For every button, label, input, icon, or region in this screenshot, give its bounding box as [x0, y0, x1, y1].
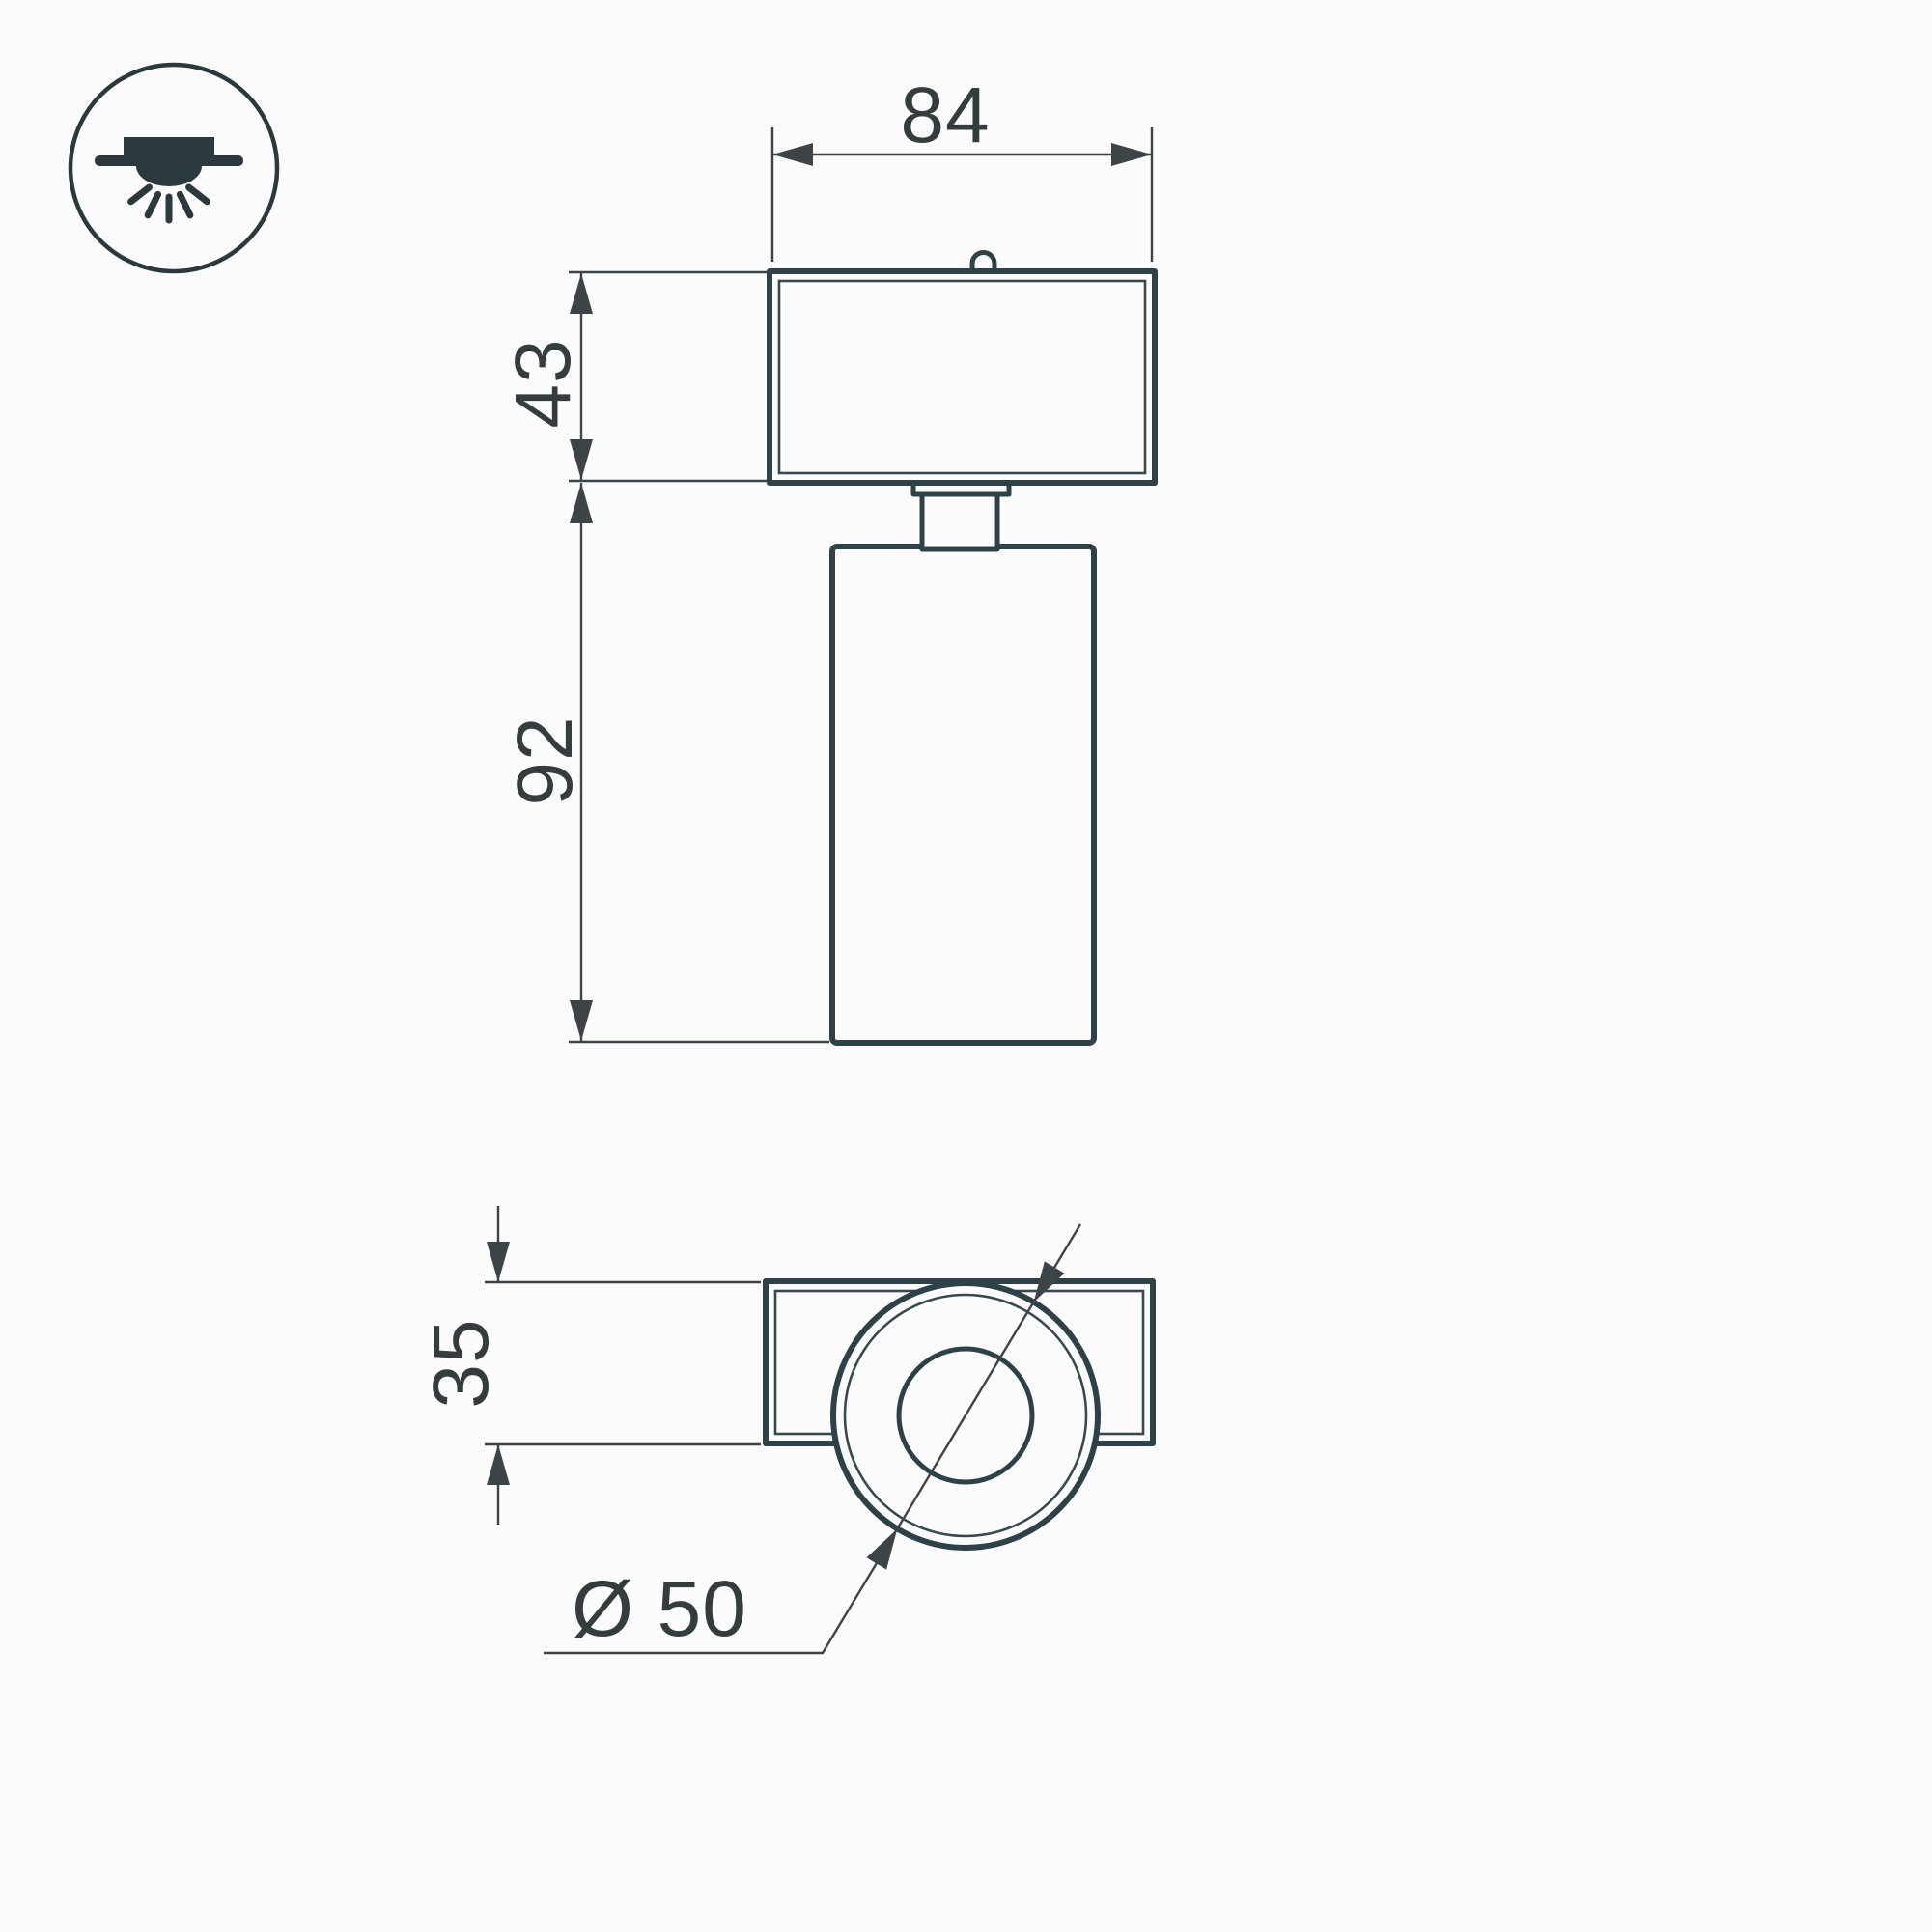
dimension-bracket-depth: 35 [417, 1206, 761, 1525]
head-outline [770, 271, 1155, 483]
arrow-diagonal-up-icon [867, 1528, 898, 1569]
arrow-left-icon [772, 143, 813, 166]
dimension-label-diameter: Ø 50 [572, 1565, 747, 1653]
dimension-label-bracket-depth: 35 [417, 1318, 505, 1408]
dimension-label-width: 84 [900, 71, 990, 159]
dimension-label-head-height: 43 [499, 338, 587, 428]
arrow-down-icon [570, 439, 593, 480]
icon-lamp-dome [136, 166, 202, 186]
icon-fixture-body [124, 137, 214, 158]
arrow-down-icon [570, 1000, 593, 1041]
mount-type-icon [70, 65, 277, 271]
dimension-head-width: 84 [772, 71, 1152, 262]
arrow-up-icon [570, 273, 593, 314]
stem-outline [922, 488, 997, 549]
icon-light-rays [131, 187, 208, 220]
arrow-up-icon [487, 1444, 510, 1485]
dimension-label-body-height: 92 [501, 715, 589, 805]
lamp-body-outline [832, 546, 1094, 1043]
dimension-body-height: 92 [501, 483, 829, 1042]
front-view [770, 253, 1155, 1044]
technical-drawing: 84 43 92 [0, 0, 1932, 1932]
dimension-head-height: 43 [499, 272, 767, 481]
arrow-right-icon [1111, 143, 1152, 166]
top-view [766, 1281, 1153, 1548]
icon-ceiling-bar [95, 155, 243, 166]
arrow-up-icon [570, 483, 593, 523]
arrow-down-icon [487, 1242, 510, 1282]
drawing-page: 84 43 92 [0, 0, 1932, 1932]
